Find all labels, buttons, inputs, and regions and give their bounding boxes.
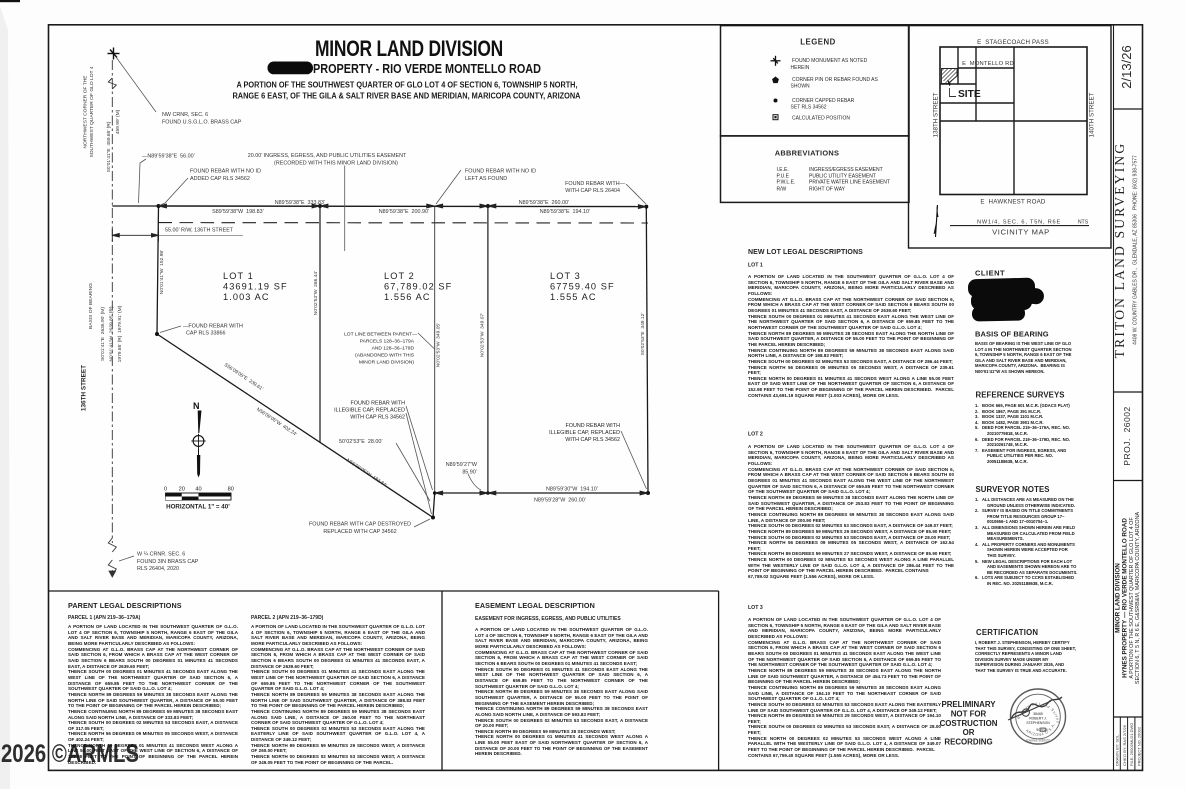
- svg-text:LOT 2: LOT 2: [384, 271, 415, 281]
- svg-text:CERTIFICATION: CERTIFICATION: [976, 628, 1038, 637]
- svg-text:ILLEGIBLE CAP, REPLACED: ILLEGIBLE CAP, REPLACED: [334, 408, 405, 414]
- svg-text:I.E.E.: I.E.E.: [777, 167, 789, 173]
- svg-text:N89’59’38"E 260.00’: N89’59’38"E 260.00’: [519, 200, 569, 206]
- svg-text:OR: OR: [963, 728, 975, 737]
- svg-text:NOT FOR: NOT FOR: [951, 709, 987, 718]
- svg-text:FOUND REBAR WITH CAP DESTROYED: FOUND REBAR WITH CAP DESTROYED: [309, 522, 411, 528]
- svg-text:LEFT AS FOUND: LEFT AS FOUND: [465, 176, 507, 182]
- svg-text:FOUND 3IN BRASS CAP: FOUND 3IN BRASS CAP: [137, 559, 199, 565]
- svg-text:BASIS OF BEARING: BASIS OF BEARING: [88, 283, 94, 329]
- svg-text:CALCULATED POSITION: CALCULATED POSITION: [792, 116, 850, 122]
- svg-text:N89’59’38"E 200.90’: N89’59’38"E 200.90’: [379, 209, 429, 215]
- svg-text:NTS: NTS: [1078, 220, 1089, 226]
- svg-text:NW CRNR, SEC. 6: NW CRNR, SEC. 6: [162, 112, 208, 118]
- svg-text:E HAWKNEST ROAD: E HAWKNEST ROAD: [980, 199, 1046, 206]
- svg-text:WITH CAP RLS 34562: WITH CAP RLS 34562: [565, 437, 620, 443]
- svg-text:PROJECT NO. 26002: PROJECT NO. 26002: [1136, 726, 1141, 766]
- svg-text:—FOUND REBAR WITH: —FOUND REBAR WITH: [183, 324, 243, 330]
- svg-text:BASIS OF BEARING: BASIS OF BEARING: [975, 330, 1049, 339]
- svg-text:PRELIMINARY: PRELIMINARY: [941, 700, 996, 709]
- svg-text:S0’01’41"E 2636.90’ (M): S0’01’41"E 2636.90’ (M): [100, 307, 106, 361]
- svg-text:SHOWN: SHOWN: [791, 84, 811, 90]
- svg-text:E MONTELLO RD: E MONTELLO RD: [962, 61, 1014, 67]
- svg-text:1.003 AC: 1.003 AC: [223, 292, 270, 302]
- svg-text:COSTRUCTION: COSTRUCTION: [940, 719, 998, 728]
- svg-text:S0’01’41"E 459.85’ (R): S0’01’41"E 459.85’ (R): [106, 121, 112, 172]
- svg-text:LEGEND: LEGEND: [800, 38, 836, 47]
- svg-text:SOUTHWEST QUARTER OF GLO LOT 4: SOUTHWEST QUARTER OF GLO LOT 4: [89, 66, 95, 157]
- svg-text:1979.85’ (R) 1979.91’ (M): 1979.85’ (R) 1979.91’ (M): [117, 305, 123, 362]
- svg-text:N89’59’30"W 194.10’: N89’59’30"W 194.10’: [546, 487, 598, 493]
- svg-text:PROPERTY - RIO VERDE MONTELLO: PROPERTY - RIO VERDE MONTELLO ROAD: [313, 61, 541, 76]
- svg-text:WITH CAP RLS 26404: WITH CAP RLS 26404: [565, 188, 620, 194]
- svg-text:SURVEYOR NOTES: SURVEYOR NOTES: [976, 485, 1050, 494]
- svg-text:50’02’53"E 28.00’: 50’02’53"E 28.00’: [339, 439, 383, 445]
- svg-text:459.99’ (M): 459.99’ (M): [115, 109, 121, 134]
- svg-text:LOT 2: LOT 2: [748, 432, 763, 438]
- svg-text:E STAGECOACH PASS: E STAGECOACH PASS: [977, 39, 1049, 46]
- svg-text:R/W: R/W: [777, 187, 787, 193]
- svg-text:AND 128–36–179D: AND 128–36–179D: [372, 346, 415, 352]
- svg-text:VICINITY MAP: VICINITY MAP: [992, 228, 1050, 237]
- svg-text:SITE: SITE: [958, 89, 981, 100]
- svg-text:140TH STREET: 140TH STREET: [1089, 92, 1096, 137]
- svg-text:1.556 AC: 1.556 AC: [384, 292, 431, 302]
- svg-text:80: 80: [228, 487, 234, 493]
- svg-text:RIGHT OF WAY: RIGHT OF WAY: [809, 187, 846, 193]
- svg-text:HEREIN: HEREIN: [791, 65, 810, 71]
- svg-text:FOUND U.S.G.L.O. BRASS CAP: FOUND U.S.G.L.O. BRASS CAP: [162, 120, 242, 126]
- svg-text:85.90’: 85.90’: [462, 469, 477, 475]
- svg-text:Expires 9/30/27: Expires 9/30/27: [1026, 739, 1050, 743]
- svg-text:SECTION 6, T 5 N, R 6 E, G&SRB: SECTION 6, T 5 N, R 6 E, G&SRB&M, MARICO…: [1135, 512, 1141, 685]
- svg-text:FOUND REBAR WITH: FOUND REBAR WITH: [565, 423, 620, 429]
- svg-text:20.00’ INGRESS, EGRESS, AND PU: 20.00’ INGRESS, EGRESS, AND PUBLIC UTILI…: [248, 153, 407, 159]
- svg-text:1.555 AC: 1.555 AC: [550, 292, 597, 302]
- svg-text:PARCEL 2 (APN 219–36–179D): PARCEL 2 (APN 219–36–179D): [251, 615, 324, 621]
- svg-text:A PORTION OF THE SOUTHWEST QUA: A PORTION OF THE SOUTHWEST QUARTER OF GL…: [237, 80, 578, 90]
- svg-text:S89’59’38"W 198.83’: S89’59’38"W 198.83’: [212, 209, 264, 215]
- svg-text:N89’59’28"W 260.00’: N89’59’28"W 260.00’: [534, 498, 586, 504]
- svg-text:N89’59’27"W: N89’59’27"W: [446, 462, 478, 468]
- svg-text:ABBREVIATIONS: ABBREVIATIONS: [775, 149, 840, 158]
- svg-text:P.U.E: P.U.E: [777, 173, 790, 179]
- svg-text:136TH STREET: 136TH STREET: [81, 365, 88, 411]
- svg-text:NORTHWEST CORNER OF THE: NORTHWEST CORNER OF THE: [83, 75, 89, 149]
- svg-text:55.00’ R/W, 136TH STREET: 55.00’ R/W, 136TH STREET: [165, 228, 234, 234]
- svg-text:INGRESS/EGRESS EASEMENT: INGRESS/EGRESS EASEMENT: [809, 167, 883, 173]
- svg-text:HORIZONTAL 1" = 40’: HORIZONTAL 1" = 40’: [166, 504, 230, 511]
- svg-text:S0’02’53"E 349.12’: S0’02’53"E 349.12’: [640, 313, 646, 356]
- svg-text:LOT 3: LOT 3: [550, 271, 581, 281]
- svg-text:20: 20: [179, 487, 185, 493]
- svg-text:43691.19 SF: 43691.19 SF: [223, 282, 288, 292]
- svg-text:TRITON LAND SURVEYING: TRITON LAND SURVEYING: [1112, 142, 1127, 359]
- svg-text:NEW LOT LEGAL DESCRIPTIONS: NEW LOT LEGAL DESCRIPTIONS: [748, 249, 863, 256]
- svg-text:MINOR LAND DIVISION: MINOR LAND DIVISION: [315, 36, 503, 61]
- svg-text:138TH STREET: 138TH STREET: [933, 92, 940, 137]
- svg-text:N0’01’41"W 152.98’: N0’01’41"W 152.98’: [159, 250, 165, 294]
- svg-text:EASEMENT FOR INGRESS, EGRESS,: EASEMENT FOR INGRESS, EGRESS, AND PUBLIC…: [475, 616, 621, 622]
- svg-text:N0’02’53"W 286.44’: N0’02’53"W 286.44’: [313, 271, 319, 315]
- svg-text:DRAWN BY: SDL: DRAWN BY: SDL: [1115, 734, 1120, 766]
- svg-text:MINOR LAND DIVISION: MINOR LAND DIVISION: [1115, 563, 1122, 633]
- svg-text:PARENT LEGAL DESCRIPTIONS: PARENT LEGAL DESCRIPTIONS: [68, 601, 182, 610]
- svg-text:CAP RLS 33866: CAP RLS 33866: [186, 331, 225, 337]
- svg-text:REPLACED WITH CAP 34562: REPLACED WITH CAP 34562: [323, 529, 396, 535]
- svg-text:ADDED CAP RLS 34562: ADDED CAP RLS 34562: [190, 176, 250, 182]
- svg-text:HYNES PROPERTY — RIO VERDE MON: HYNES PROPERTY — RIO VERDE MONTELLO ROAD: [1122, 518, 1129, 678]
- svg-text:40: 40: [195, 487, 201, 493]
- svg-text:CLIENT: CLIENT: [975, 269, 1005, 278]
- svg-text:FOUND REBAR WITH—: FOUND REBAR WITH—: [565, 181, 626, 187]
- svg-text:FOUND REBAR WITH NO ID: FOUND REBAR WITH NO ID: [465, 169, 536, 175]
- svg-text:NW1/4, SEC. 6, T5N, R6E: NW1/4, SEC. 6, T5N, R6E: [977, 220, 1061, 226]
- svg-text:0: 0: [164, 487, 167, 493]
- svg-text:—N89’59’38"E 56.00’: —N89’59’38"E 56.00’: [142, 154, 195, 160]
- svg-text:67759.40 SF: 67759.40 SF: [550, 282, 615, 292]
- svg-text:LOT LINE BETWEEN PARENT—: LOT LINE BETWEEN PARENT—: [344, 332, 417, 338]
- svg-text:PROJ. 26002: PROJ. 26002: [1122, 406, 1132, 465]
- svg-text:(ABANDONED WITH THIS: (ABANDONED WITH THIS: [355, 353, 415, 359]
- svg-text:FOUND REBAR WITH NO ID: FOUND REBAR WITH NO ID: [190, 169, 261, 175]
- svg-text:(RECORDED WITH THIS MINOR LAND: (RECORDED WITH THIS MINOR LAND DIVISION): [274, 161, 398, 167]
- svg-text:CORNER PIN OR REBAR FOUND AS: CORNER PIN OR REBAR FOUND AS: [792, 77, 879, 83]
- svg-text:EASEMENT LEGAL DESCRIPTION: EASEMENT LEGAL DESCRIPTION: [475, 601, 595, 610]
- svg-text:N0’01’41"W 2639.85’ (R): N0’01’41"W 2639.85’ (R): [109, 306, 115, 361]
- svg-text:PRIVATE WATER LINE EASEMENT: PRIVATE WATER LINE EASEMENT: [809, 180, 890, 186]
- svg-text:LOT 3: LOT 3: [748, 605, 763, 611]
- svg-text:ILLEGIBLE CAP, REPLACED: ILLEGIBLE CAP, REPLACED: [549, 430, 620, 436]
- svg-text:CHK'D BY: RAS 2/7/26: CHK'D BY: RAS 2/7/26: [1122, 724, 1127, 766]
- svg-text:REFERENCE SURVEYS: REFERENCE SURVEYS: [976, 391, 1065, 400]
- svg-text:PARCELS 128–36–179A: PARCELS 128–36–179A: [360, 339, 415, 345]
- svg-text:P.W.L.E.: P.W.L.E.: [777, 180, 796, 186]
- svg-text:FILE: 26002MLD1.DWG: FILE: 26002MLD1.DWG: [1129, 723, 1134, 766]
- svg-text:W ¼ CRNR. SEC. 6: W ¼ CRNR. SEC. 6: [137, 552, 185, 558]
- svg-text:STEPHENSON: STEPHENSON: [1026, 721, 1050, 725]
- svg-text:FOUND MONUMENT AS NOTED: FOUND MONUMENT AS NOTED: [792, 58, 868, 64]
- svg-text:PUBLIC UTILITY EASEMENT: PUBLIC UTILITY EASEMENT: [809, 173, 876, 179]
- svg-text:FOUND REBAR WITH: FOUND REBAR WITH: [350, 401, 405, 407]
- svg-text:N89’59’38"E 333.83’: N89’59’38"E 333.83’: [275, 200, 325, 206]
- svg-text:N0’02’53"W 349.07’: N0’02’53"W 349.07’: [480, 313, 486, 357]
- svg-text:N: N: [193, 401, 200, 411]
- svg-text:RLS 26404, 2020: RLS 26404, 2020: [137, 566, 179, 572]
- svg-text:MINOR LAND DIVISION): MINOR LAND DIVISION): [359, 360, 415, 366]
- svg-text:N89’59’38"E 194.10’: N89’59’38"E 194.10’: [540, 209, 590, 215]
- svg-text:67,789.02 SF: 67,789.02 SF: [384, 282, 452, 292]
- svg-text:PARCEL 1 (APN 219–36–179A): PARCEL 1 (APN 219–36–179A): [68, 615, 141, 621]
- svg-text:4408 W. COUNTRY GABLES DR., G: 4408 W. COUNTRY GABLES DR., GLENDALE, AZ…: [1133, 155, 1139, 345]
- svg-text:RECORDING: RECORDING: [944, 738, 992, 747]
- svg-text:N0’02’53"W 349.05’: N0’02’53"W 349.05’: [436, 323, 442, 367]
- svg-text:WITH CAP RLS 34562: WITH CAP RLS 34562: [350, 415, 405, 421]
- svg-text:38465: 38465: [1033, 712, 1043, 716]
- svg-text:SET RLS 34562: SET RLS 34562: [791, 105, 827, 111]
- svg-text:LOT 1: LOT 1: [748, 263, 763, 269]
- svg-text:LOT 1: LOT 1: [223, 271, 254, 281]
- svg-text:CORNER CAPPED REBAR: CORNER CAPPED REBAR: [792, 98, 855, 104]
- svg-text:RANGE 6 EAST, OF THE GILA & SA: RANGE 6 EAST, OF THE GILA & SALT RIVER B…: [233, 90, 581, 100]
- svg-text:2/13/26: 2/13/26: [1119, 45, 1134, 88]
